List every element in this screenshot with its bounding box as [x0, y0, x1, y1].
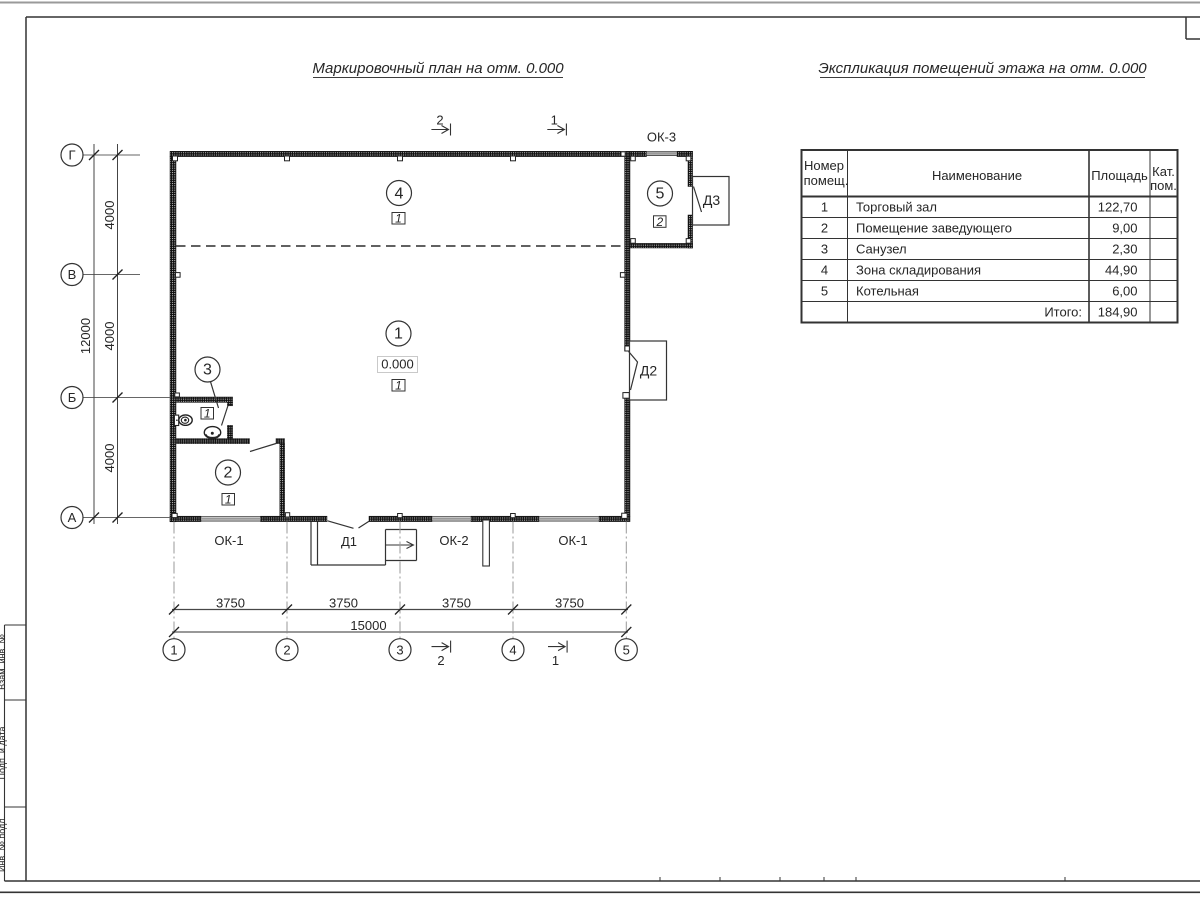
svg-text:1: 1 [170, 642, 177, 657]
svg-text:2: 2 [437, 653, 444, 668]
svg-text:1: 1 [395, 379, 402, 393]
svg-text:1: 1 [821, 200, 828, 215]
svg-text:1: 1 [395, 212, 402, 226]
svg-text:1: 1 [204, 407, 211, 421]
svg-text:Подп. и дата: Подп. и дата [0, 726, 7, 779]
svg-text:ОК-3: ОК-3 [647, 130, 676, 145]
svg-text:помещ.: помещ. [804, 173, 849, 188]
svg-text:ОК-1: ОК-1 [214, 533, 243, 548]
svg-text:Итого:: Итого: [1044, 305, 1082, 320]
svg-text:А: А [68, 510, 77, 525]
svg-text:Наименование: Наименование [932, 168, 1022, 183]
svg-text:Д1: Д1 [341, 534, 357, 549]
svg-text:1: 1 [552, 653, 559, 668]
svg-text:Инв. № подл.: Инв. № подл. [0, 816, 7, 872]
svg-text:2: 2 [655, 215, 663, 229]
svg-text:12000: 12000 [78, 318, 93, 354]
svg-text:4000: 4000 [102, 444, 117, 473]
svg-text:Кат.: Кат. [1152, 164, 1175, 179]
svg-text:15000: 15000 [350, 618, 386, 633]
svg-text:4: 4 [395, 186, 404, 203]
svg-text:3: 3 [821, 242, 828, 257]
svg-text:Взам. инв. №: Взам. инв. № [0, 634, 7, 690]
svg-text:Номер: Номер [804, 158, 844, 173]
svg-text:5: 5 [623, 642, 630, 657]
svg-text:5: 5 [656, 186, 665, 203]
svg-text:Экспликация помещений этажа на: Экспликация помещений этажа на отм. 0.00… [818, 60, 1147, 77]
svg-text:44,90: 44,90 [1105, 263, 1138, 278]
svg-text:2: 2 [224, 465, 233, 482]
svg-text:Д2: Д2 [640, 363, 657, 379]
svg-text:9,00: 9,00 [1112, 221, 1137, 236]
svg-text:4000: 4000 [102, 322, 117, 351]
svg-text:5: 5 [821, 284, 828, 299]
svg-text:2: 2 [436, 113, 443, 128]
svg-text:Г: Г [68, 148, 75, 163]
svg-text:3750: 3750 [329, 596, 358, 611]
svg-text:Торговый зал: Торговый зал [856, 200, 937, 215]
svg-text:ОК-1: ОК-1 [558, 533, 587, 548]
svg-text:122,70: 122,70 [1098, 200, 1138, 215]
svg-text:1: 1 [225, 493, 232, 507]
svg-text:Помещение заведующего: Помещение заведующего [856, 221, 1012, 236]
svg-text:2,30: 2,30 [1112, 242, 1137, 257]
svg-text:6,00: 6,00 [1112, 284, 1137, 299]
svg-text:Площадь: Площадь [1091, 168, 1148, 183]
svg-text:пом.: пом. [1150, 178, 1177, 193]
svg-text:Д3: Д3 [703, 192, 720, 208]
svg-text:3750: 3750 [442, 596, 471, 611]
svg-text:4000: 4000 [102, 201, 117, 230]
svg-text:3: 3 [203, 362, 212, 379]
svg-text:Маркировочный план на отм. 0.0: Маркировочный план на отм. 0.000 [312, 60, 564, 77]
svg-text:2: 2 [283, 642, 290, 657]
svg-text:3750: 3750 [555, 596, 584, 611]
svg-text:2: 2 [821, 221, 828, 236]
svg-text:184,90: 184,90 [1098, 305, 1138, 320]
svg-text:1: 1 [551, 113, 558, 128]
svg-text:Котельная: Котельная [856, 284, 919, 299]
svg-text:ОК-2: ОК-2 [439, 533, 468, 548]
svg-text:Б: Б [68, 390, 77, 405]
svg-text:Санузел: Санузел [856, 242, 907, 257]
svg-text:3: 3 [396, 642, 403, 657]
svg-text:4: 4 [509, 642, 516, 657]
svg-text:4: 4 [821, 263, 828, 278]
svg-text:В: В [68, 267, 77, 282]
svg-text:0.000: 0.000 [381, 357, 414, 372]
svg-text:1: 1 [394, 326, 403, 343]
svg-text:3750: 3750 [216, 596, 245, 611]
svg-text:Зона складирования: Зона складирования [856, 263, 981, 278]
